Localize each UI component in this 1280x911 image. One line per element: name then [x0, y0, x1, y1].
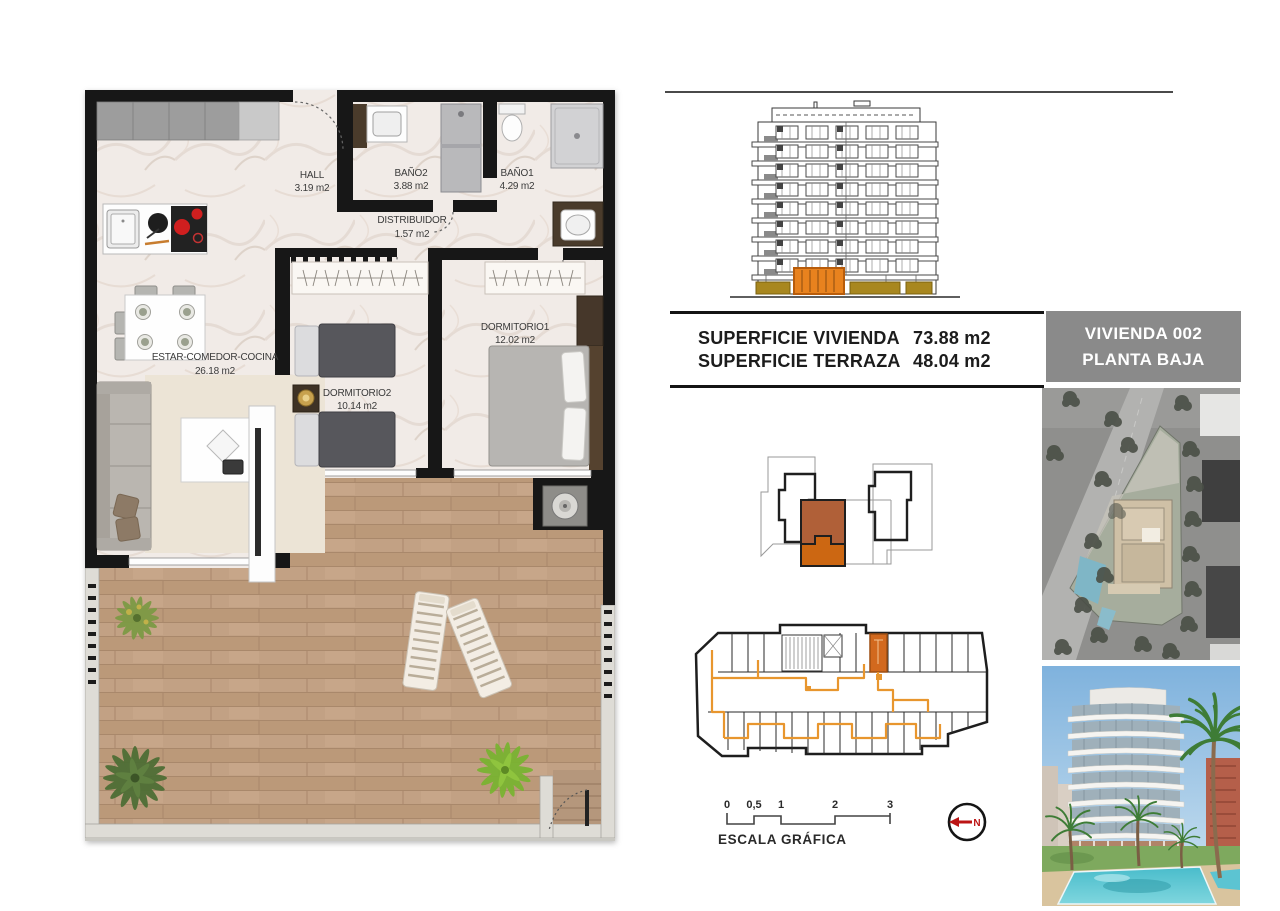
room-area-dorm2: 10.14 m2: [337, 401, 378, 412]
closet-dorm1: [485, 262, 585, 294]
bed-dorm1: [489, 346, 603, 470]
terrace-edge-shadow: [85, 838, 615, 841]
room-label-distribuidor: DISTRIBUIDOR: [377, 215, 446, 226]
room-area-estar: 26.18 m2: [195, 366, 236, 377]
terrace-railing-left: [88, 584, 96, 684]
bed-dorm2-a: [295, 324, 395, 377]
unit-badge: VIVIENDA 002 PLANTA BAJA: [1046, 311, 1241, 382]
nightstand-dorm2: [293, 385, 319, 412]
top-divider-line: [665, 91, 1173, 93]
room-label-dorm2: DORMITORIO2: [323, 388, 392, 399]
garage-level-plan: [688, 620, 993, 792]
terrace-gate: [585, 790, 589, 826]
closet-dorm2: [292, 262, 428, 294]
outdoor-shower: [533, 478, 603, 530]
apartment-floor-plan: HALL 3.19 m2 BAÑO2 3.88 m2 BAÑO1 4.29 m2…: [85, 90, 615, 850]
room-area-hall: 3.19 m2: [295, 183, 330, 194]
unit-number: VIVIENDA 002: [1085, 321, 1203, 347]
scale-tick-05: 0,5: [746, 799, 761, 811]
dining-table: [115, 286, 205, 360]
north-arrow-icon: N: [945, 800, 989, 844]
building-elevation-drawing: [728, 100, 963, 305]
scale-bar: 0 0,5 1 2 3: [718, 798, 898, 834]
surface-label: SUPERFICIE VIVIENDA: [698, 328, 913, 349]
table-row: SUPERFICIE TERRAZA 48.04 m2: [670, 351, 1044, 372]
room-area-dorm1: 12.02 m2: [495, 335, 536, 346]
wardrobe-dorm1: [577, 296, 603, 346]
room-label-estar: ESTAR-COMEDOR-COCINA: [152, 352, 279, 363]
bed-dorm2-b: [295, 412, 395, 467]
scale-tick-3: 3: [887, 799, 893, 811]
terrace-steps: [553, 770, 601, 824]
plan-sheet: HALL 3.19 m2 BAÑO2 3.88 m2 BAÑO1 4.29 m2…: [0, 0, 1280, 911]
building-location-key: [735, 452, 985, 592]
surface-value: 48.04 m2: [913, 351, 1044, 372]
room-area-bano1: 4.29 m2: [500, 181, 535, 192]
aerial-site-photo: [1042, 388, 1240, 660]
tv-console: [249, 406, 275, 582]
render-white-building: [1068, 688, 1184, 864]
room-label-hall: HALL: [300, 170, 325, 181]
sofa: [97, 382, 151, 550]
building-render-photo: [1042, 666, 1240, 906]
surface-value: 73.88 m2: [913, 328, 1044, 349]
render-red-tower: [1206, 758, 1240, 850]
room-area-bano2: 3.88 m2: [394, 181, 429, 192]
room-area-distribuidor: 1.57 m2: [395, 229, 430, 240]
kitchen-counter: [103, 204, 207, 254]
surface-summary-table: SUPERFICIE VIVIENDA 73.88 m2 SUPERFICIE …: [670, 311, 1044, 388]
scale-tick-1: 1: [778, 799, 784, 811]
kitchen-cabinets: [97, 102, 279, 140]
north-label: N: [973, 818, 980, 829]
scale-tick-2: 2: [832, 799, 838, 811]
table-row: SUPERFICIE VIVIENDA 73.88 m2: [670, 328, 1044, 349]
surface-label: SUPERFICIE TERRAZA: [698, 351, 913, 372]
room-label-dorm1: DORMITORIO1: [481, 322, 550, 333]
scale-caption: ESCALA GRÁFICA: [718, 832, 847, 847]
room-label-bano1: BAÑO1: [501, 166, 535, 179]
unit-floor: PLANTA BAJA: [1082, 347, 1204, 373]
scale-tick-0: 0: [724, 799, 730, 811]
room-label-bano2: BAÑO2: [395, 166, 429, 179]
elevation-highlight-unit: [794, 268, 844, 294]
